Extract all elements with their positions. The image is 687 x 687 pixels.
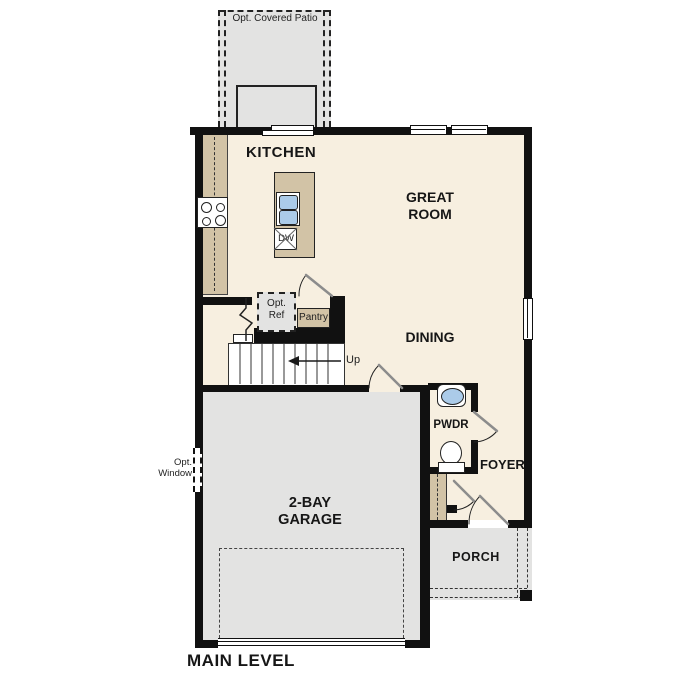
chase-dash-line	[437, 474, 438, 520]
patio-slider-door-panel	[271, 125, 314, 131]
porch-post	[520, 590, 532, 601]
garage-top-wall-left	[195, 385, 369, 392]
pantry-label: Pantry	[297, 312, 330, 323]
garage-bottom-wall-left	[195, 640, 218, 648]
opt-ref-label: Opt. Ref	[260, 298, 293, 322]
garage-label: 2-BAY GARAGE	[270, 495, 350, 529]
dining-side-window	[523, 298, 533, 340]
porch-dash-bottom-1	[430, 588, 527, 589]
sink-basin	[279, 210, 298, 225]
foyer-bottom-wall-left	[428, 520, 468, 528]
burner	[202, 217, 211, 226]
pwdr-label: PWDR	[431, 419, 471, 431]
burner	[215, 215, 226, 226]
window-mullion	[452, 129, 486, 130]
great-room-label: GREAT ROOM	[390, 189, 470, 223]
window-mullion	[527, 299, 528, 338]
burner	[216, 203, 225, 212]
foyer-chase	[430, 474, 447, 520]
porch-label: PORCH	[450, 550, 502, 564]
optional-window	[193, 448, 202, 492]
dining-label: DINING	[395, 329, 465, 345]
foyer-label: FOYER	[480, 457, 525, 472]
garage-bottom-wall-right	[405, 640, 430, 648]
patio-inner-dash-right	[323, 10, 325, 127]
garage-right-wall	[420, 385, 430, 648]
pwdr-sink	[437, 384, 466, 407]
great-room-window-1	[410, 125, 447, 135]
stairs-area	[228, 343, 345, 385]
driveway-outline	[219, 548, 404, 638]
up-label: Up	[346, 354, 360, 366]
opt-window-label: Opt. Window	[148, 457, 192, 479]
kitchen-label: KITCHEN	[246, 144, 316, 161]
burner	[201, 202, 212, 213]
plan-title: MAIN LEVEL	[187, 651, 295, 671]
pwdr-right-wall-upper	[471, 383, 478, 412]
garage-door	[218, 638, 405, 646]
foyer-bottom-wall-right	[508, 520, 532, 528]
patio-inner-dash-left	[224, 10, 226, 127]
toilet-tank	[438, 462, 465, 473]
sink-basin	[279, 195, 298, 210]
island-sink	[276, 192, 300, 226]
porch-dash-bottom-2	[430, 597, 527, 598]
patio-label: Opt. Covered Patio	[230, 13, 320, 25]
pantry-right-stub	[330, 296, 345, 328]
floor-plan: Opt. Covered Patio	[0, 0, 687, 687]
porch-dash-right-outer	[527, 528, 528, 598]
foyer-closet-stub	[447, 505, 457, 513]
great-room-window-2	[451, 125, 488, 135]
sink-bowl	[441, 388, 464, 405]
garage-door-line	[218, 641, 405, 642]
stair-landing-box	[233, 334, 253, 343]
patio-slab	[236, 85, 317, 127]
kitchen-stair-wall	[195, 297, 252, 305]
stove	[197, 197, 228, 228]
dishwasher-label: DW	[276, 233, 296, 244]
window-mullion	[411, 129, 445, 130]
